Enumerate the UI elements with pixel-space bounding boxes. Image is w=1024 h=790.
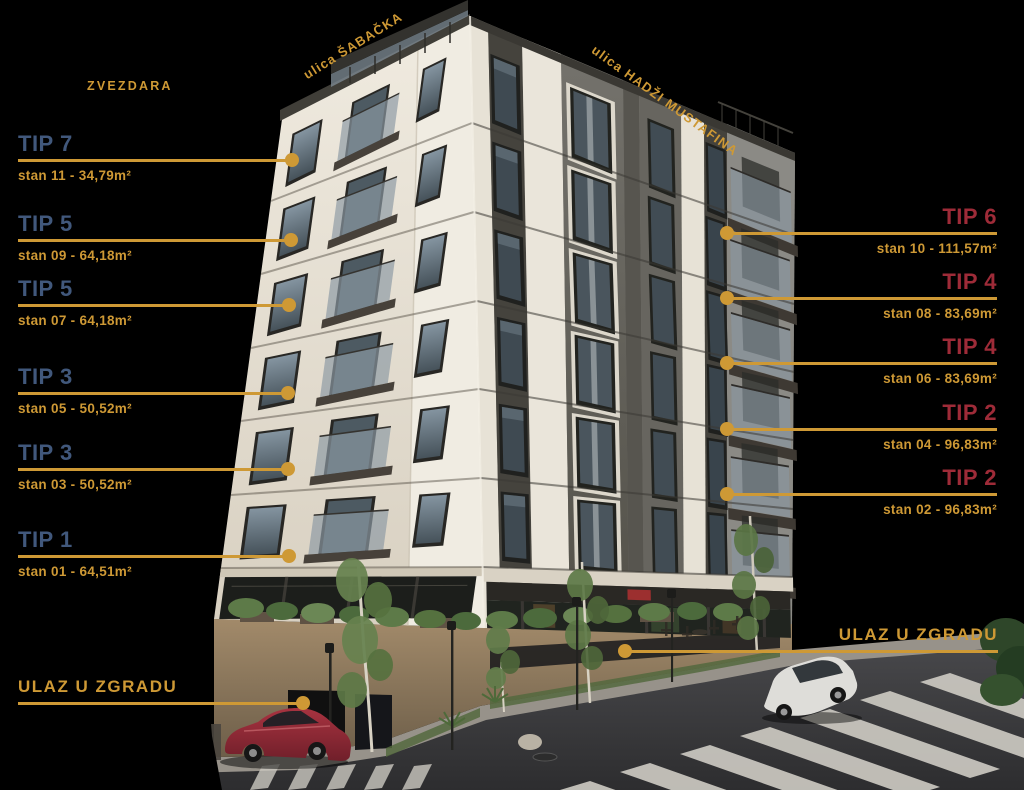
apartment-unit-label: stan 07 - 64,18m² (18, 313, 289, 328)
scene: ZVEZDARA ulica ŠABAČKA ulica HADŽI MUSTA… (0, 0, 1024, 790)
apartment-type-label: TIP 4 (727, 270, 997, 293)
callout-dot (296, 696, 310, 710)
callout-tip5-stan09[interactable]: TIP 5 stan 09 - 64,18m² (18, 212, 291, 263)
callout-line (18, 159, 292, 162)
apartment-unit-label: stan 09 - 64,18m² (18, 248, 291, 263)
apartment-type-label: TIP 4 (727, 335, 997, 358)
callout-dot (720, 356, 734, 370)
apartment-unit-label: stan 01 - 64,51m² (18, 564, 289, 579)
apartment-unit-label: stan 05 - 50,52m² (18, 401, 288, 416)
apartment-type-label: TIP 6 (727, 205, 997, 228)
apartment-unit-label: stan 10 - 111,57m² (727, 241, 997, 256)
apartment-unit-label: stan 06 - 83,69m² (727, 371, 997, 386)
callout-dot (281, 462, 295, 476)
callout-dot (618, 644, 632, 658)
callout-dot (720, 291, 734, 305)
callout-tip5-stan07[interactable]: TIP 5 stan 07 - 64,18m² (18, 277, 289, 328)
callout-line (625, 650, 998, 653)
callout-line (727, 428, 997, 431)
callout-line (18, 555, 289, 558)
callout-dot (285, 153, 299, 167)
callout-dot (282, 298, 296, 312)
callout-line (18, 702, 303, 705)
callout-tip2-stan02[interactable]: TIP 2 stan 02 - 96,83m² (727, 466, 997, 517)
callout-dot (284, 233, 298, 247)
apartment-type-label: TIP 3 (18, 365, 288, 388)
callout-dot (282, 549, 296, 563)
callout-line (18, 239, 291, 242)
callout-tip4-stan06[interactable]: TIP 4 stan 06 - 83,69m² (727, 335, 997, 386)
callout-line (727, 493, 997, 496)
callout-dot (720, 422, 734, 436)
apartment-unit-label: stan 03 - 50,52m² (18, 477, 288, 492)
callout-tip4-stan08[interactable]: TIP 4 stan 08 - 83,69m² (727, 270, 997, 321)
callout-dot (720, 226, 734, 240)
entrance-label: ULAZ U ZGRADU (625, 625, 998, 645)
apartment-unit-label: stan 08 - 83,69m² (727, 306, 997, 321)
callout-line (727, 362, 997, 365)
callout-dot (720, 487, 734, 501)
apartment-type-label: TIP 2 (727, 401, 997, 424)
callout-tip7-stan11[interactable]: TIP 7 stan 11 - 34,79m² (18, 132, 292, 183)
callout-line (18, 392, 288, 395)
callout-tip2-stan04[interactable]: TIP 2 stan 04 - 96,83m² (727, 401, 997, 452)
callout-line (727, 232, 997, 235)
apartment-unit-label: stan 02 - 96,83m² (727, 502, 997, 517)
callout-tip3-stan05[interactable]: TIP 3 stan 05 - 50,52m² (18, 365, 288, 416)
apartment-type-label: TIP 3 (18, 441, 288, 464)
callout-line (18, 468, 288, 471)
apartment-unit-label: stan 11 - 34,79m² (18, 168, 292, 183)
district-label: ZVEZDARA (87, 79, 173, 93)
apartment-type-label: TIP 2 (727, 466, 997, 489)
apartment-type-label: TIP 7 (18, 132, 292, 155)
callout-line (727, 297, 997, 300)
entrance-callout-left[interactable]: ULAZ U ZGRADU (18, 677, 303, 705)
apartment-type-label: TIP 5 (18, 277, 289, 300)
entrance-label: ULAZ U ZGRADU (18, 677, 303, 697)
entrance-callout-right[interactable]: ULAZ U ZGRADU (625, 625, 998, 653)
apartment-type-label: TIP 5 (18, 212, 291, 235)
callout-tip6-stan10[interactable]: TIP 6 stan 10 - 111,57m² (727, 205, 997, 256)
apartment-unit-label: stan 04 - 96,83m² (727, 437, 997, 452)
callout-line (18, 304, 289, 307)
apartment-type-label: TIP 1 (18, 528, 289, 551)
callout-tip3-stan03[interactable]: TIP 3 stan 03 - 50,52m² (18, 441, 288, 492)
callout-tip1-stan01[interactable]: TIP 1 stan 01 - 64,51m² (18, 528, 289, 579)
callout-dot (281, 386, 295, 400)
